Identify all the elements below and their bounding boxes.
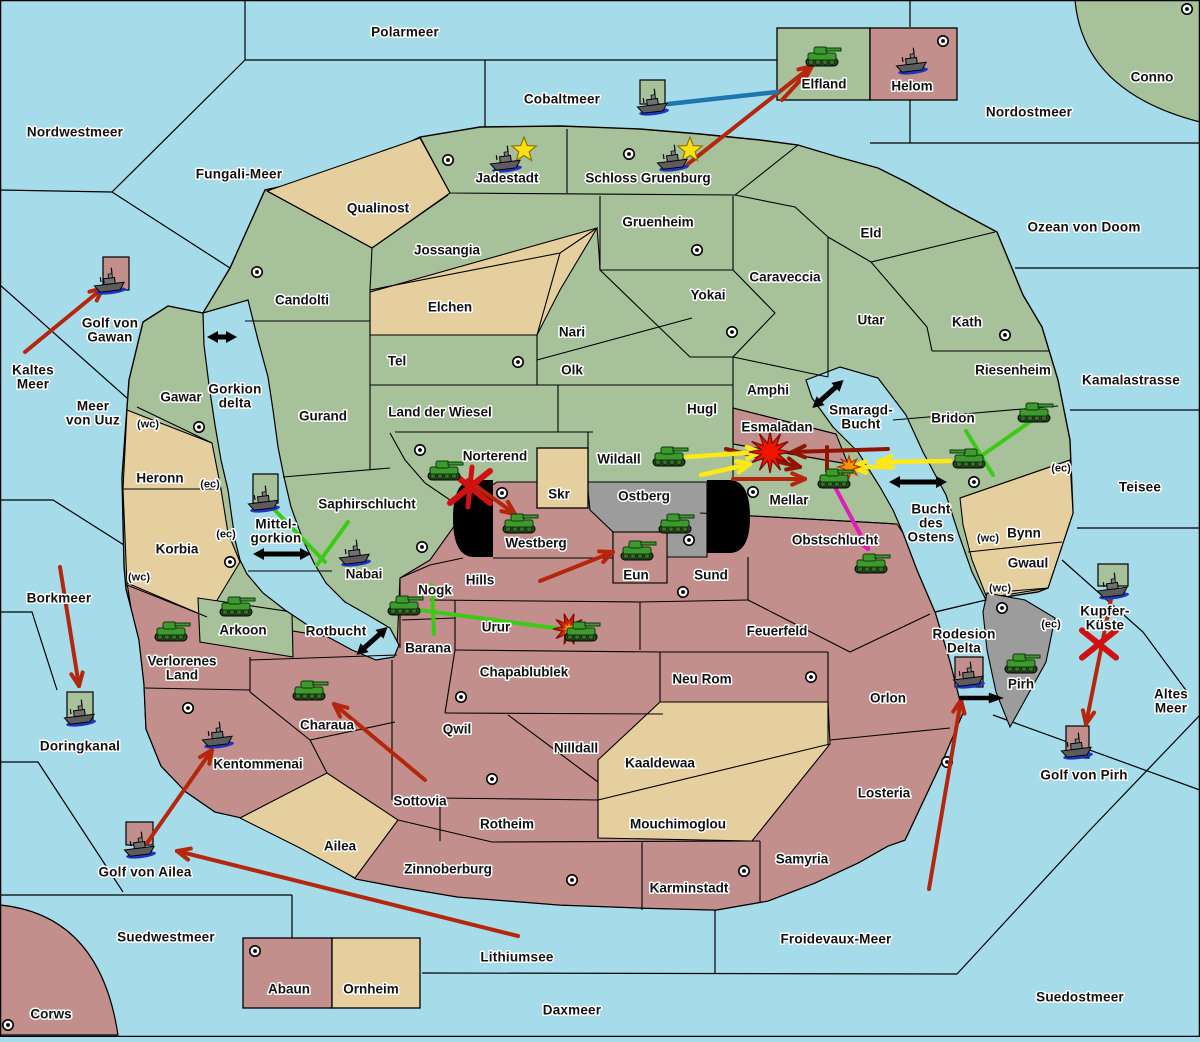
supply-center-icon	[3, 1020, 13, 1030]
coast-marker: (ec)	[216, 529, 236, 541]
province-label-elfland: Elfland	[801, 77, 846, 92]
supply-center-icon	[183, 703, 193, 713]
black-pill-east	[707, 480, 750, 553]
province-label-ailea: Ailea	[324, 839, 357, 854]
province-label-hugl: Hugl	[687, 402, 717, 417]
province-label-heronn: Heronn	[136, 471, 183, 486]
supply-center-icon	[567, 875, 577, 885]
sea-label-kamalastrasse: Kamalastrasse	[1082, 373, 1180, 388]
supply-center-icon	[1182, 4, 1192, 14]
supply-center-icon	[727, 327, 737, 337]
province-label-sund: Sund	[694, 568, 728, 583]
province-label-obstschlucht: Obstschlucht	[792, 533, 879, 548]
province-label-norterend: Norterend	[463, 449, 528, 464]
province-label-urur: Urur	[482, 620, 511, 635]
province-label-nari: Nari	[559, 325, 585, 340]
sea-label-golf-von-ailea: Golf von Ailea	[98, 865, 191, 880]
supply-center-icon	[748, 487, 758, 497]
province-label-sottovia: Sottovia	[393, 794, 447, 809]
sea-label-mittel-gorkion: Mittel-gorkion	[251, 517, 302, 546]
province-label-qualinost: Qualinost	[347, 201, 410, 216]
coast-marker: (wc)	[137, 419, 159, 431]
province-label-eld: Eld	[860, 226, 881, 241]
province-label-olk: Olk	[561, 363, 583, 378]
province-label-schloss-gruenburg: Schloss Gruenburg	[585, 171, 710, 186]
province-label-gwaul: Gwaul	[1008, 556, 1049, 571]
province-label-losteria: Losteria	[858, 786, 911, 801]
supply-center-icon	[417, 542, 427, 552]
province-label-gruenheim: Gruenheim	[622, 215, 693, 230]
province-label-candolti: Candolti	[275, 293, 329, 308]
province-label-ostberg: Ostberg	[618, 489, 670, 504]
province-label-ornheim: Ornheim	[343, 982, 399, 997]
map-canvas: PolarmeerNordwestmeerFungali-MeerCobaltm…	[0, 0, 1200, 1037]
sea-label-doringkanal: Doringkanal	[40, 739, 120, 754]
province-label-caraveccia: Caraveccia	[749, 270, 821, 285]
province-label-kath: Kath	[952, 315, 982, 330]
province-label-rotheim: Rotheim	[480, 817, 534, 832]
ornheim-box	[332, 938, 420, 1008]
province-label-korbia: Korbia	[156, 542, 199, 557]
supply-center-icon	[969, 477, 979, 487]
province-label-orlon: Orlon	[870, 691, 906, 706]
supply-center-icon	[487, 774, 497, 784]
coast-marker: (ec)	[1051, 463, 1071, 475]
supply-center-icon	[997, 603, 1007, 613]
province-label-kaaldewaa: Kaaldewaa	[625, 756, 695, 771]
sea-label-kupfer-k-ste: Kupfer-Küste	[1080, 604, 1129, 633]
province-label-zinnoberburg: Zinnoberburg	[404, 862, 492, 877]
province-label-abaun: Abaun	[268, 982, 310, 997]
province-label-barana: Barana	[405, 641, 451, 656]
province-label-jadestadt: Jadestadt	[475, 171, 539, 186]
supply-center-icon	[739, 866, 749, 876]
province-label-chapablublek: Chapablublek	[480, 665, 569, 680]
province-label-skr: Skr	[548, 487, 571, 502]
supply-center-icon	[415, 445, 425, 455]
sea-label-cobaltmeer: Cobaltmeer	[524, 92, 601, 107]
supply-center-icon	[678, 587, 688, 597]
province-label-arkoon: Arkoon	[219, 623, 266, 638]
province-label-yokai: Yokai	[690, 288, 725, 303]
coast-marker: (ec)	[200, 479, 220, 491]
sea-label-daxmeer: Daxmeer	[543, 1003, 602, 1018]
supply-center-icon	[497, 488, 507, 498]
province-label-amphi: Amphi	[747, 383, 789, 398]
province-label-nilldall: Nilldall	[554, 741, 598, 756]
sea-label-ozean-von-doom: Ozean von Doom	[1027, 220, 1140, 235]
province-label-qwil: Qwil	[443, 722, 472, 737]
province-label-bynn: Bynn	[1007, 526, 1041, 541]
supply-center-icon	[252, 267, 262, 277]
sea-label-lithiumsee: Lithiumsee	[480, 950, 554, 965]
province-label-mellar: Mellar	[769, 493, 809, 508]
sea-label-altes-meer: AltesMeer	[1154, 687, 1188, 716]
province-label-conno: Conno	[1131, 70, 1174, 85]
province-label-utar: Utar	[857, 313, 885, 328]
supply-center-icon	[692, 245, 702, 255]
province-label-riesenheim: Riesenheim	[975, 363, 1051, 378]
province-label-eun: Eun	[623, 568, 649, 583]
province-label-corws: Corws	[30, 1007, 71, 1022]
province-label-neu-rom: Neu Rom	[672, 672, 731, 687]
province-label-karminstadt: Karminstadt	[650, 881, 729, 896]
sea-label-borkmeer: Borkmeer	[27, 591, 92, 606]
supply-center-icon	[938, 36, 948, 46]
province-label-mouchimoglou: Mouchimoglou	[630, 817, 726, 832]
supply-center-icon	[250, 946, 260, 956]
sea-label-suedwestmeer: Suedwestmeer	[117, 930, 215, 945]
sea-label-nordostmeer: Nordostmeer	[986, 105, 1073, 120]
supply-center-icon	[1000, 330, 1010, 340]
province-label-feuerfeld: Feuerfeld	[747, 624, 808, 639]
supply-center-icon	[194, 422, 204, 432]
game-map: PolarmeerNordwestmeerFungali-MeerCobaltm…	[0, 0, 1200, 1037]
province-label-saphirschlucht: Saphirschlucht	[318, 497, 416, 512]
province-label-pirh: Pirh	[1008, 677, 1034, 692]
sea-label-golf-von-pirh: Golf von Pirh	[1040, 768, 1127, 783]
province-label-helom: Helom	[891, 79, 932, 94]
supply-center-icon	[456, 692, 466, 702]
province-label-nogk: Nogk	[418, 583, 452, 598]
sea-label-golf-von-gawan: Golf vonGawan	[82, 316, 138, 345]
province-label-gurand: Gurand	[299, 409, 347, 424]
province-label-nabai: Nabai	[346, 567, 383, 582]
supply-center-icon	[513, 357, 523, 367]
province-label-charaua: Charaua	[300, 718, 355, 733]
supply-center-icon	[624, 149, 634, 159]
sea-label-kaltes-meer: KaltesMeer	[12, 363, 54, 392]
supply-center-icon	[225, 557, 235, 567]
province-label-land-der-wiesel: Land der Wiesel	[388, 405, 491, 420]
province-label-samyria: Samyria	[776, 852, 829, 867]
province-label-bridon: Bridon	[931, 411, 975, 426]
province-label-westberg: Westberg	[505, 536, 566, 551]
sea-label-fungali-meer: Fungali-Meer	[196, 167, 283, 182]
province-label-wildall: Wildall	[597, 452, 640, 467]
coast-marker: (wc)	[989, 583, 1011, 595]
coast-marker: (wc)	[977, 533, 999, 545]
province-label-hills: Hills	[466, 573, 495, 588]
sea-label-nordwestmeer: Nordwestmeer	[27, 125, 124, 140]
sea-label-froidevaux-meer: Froidevaux-Meer	[780, 932, 892, 947]
province-label-gawar: Gawar	[160, 390, 202, 405]
sea-label-polarmeer: Polarmeer	[371, 25, 439, 40]
coast-marker: (wc)	[128, 572, 150, 584]
province-label-kentommenai: Kentommenai	[213, 757, 302, 772]
coast-marker: (ec)	[1041, 619, 1061, 631]
province-label-elchen: Elchen	[428, 300, 472, 315]
province-label-tel: Tel	[388, 354, 407, 369]
province-label-jossangia: Jossangia	[414, 243, 481, 258]
sea-label-teisee: Teisee	[1119, 480, 1162, 495]
supply-center-icon	[443, 155, 453, 165]
supply-center-icon	[684, 535, 694, 545]
sea-label-suedostmeer: Suedostmeer	[1036, 990, 1124, 1005]
supply-center-icon	[806, 672, 816, 682]
sea-label-rotbucht: Rotbucht	[306, 624, 367, 639]
province-label-esmaladan: Esmaladan	[741, 420, 812, 435]
